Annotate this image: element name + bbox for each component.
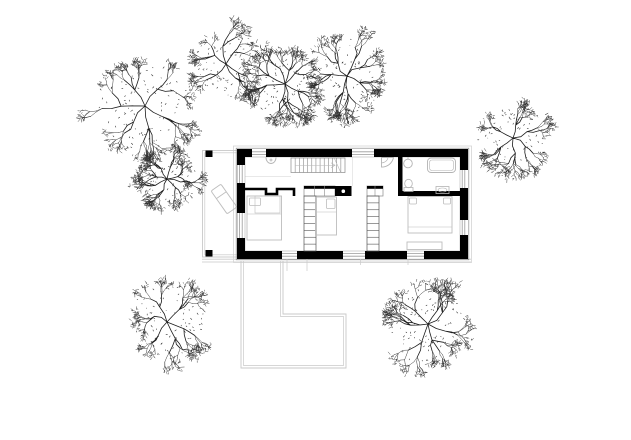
- tree: [128, 141, 208, 214]
- wall-segment: [460, 149, 468, 170]
- site-plan: [0, 0, 631, 440]
- tree: [129, 275, 211, 374]
- toilet: [404, 188, 413, 192]
- site-plan-canvas: [0, 0, 631, 440]
- staircase: [291, 158, 345, 174]
- lounge-chair: [211, 184, 237, 214]
- furniture: [247, 196, 452, 250]
- tree: [477, 97, 559, 183]
- patio-path: [241, 261, 346, 368]
- terrace-post: [206, 151, 213, 158]
- bench: [407, 242, 442, 250]
- wall-segment: [374, 149, 468, 157]
- tree: [382, 278, 477, 378]
- wall-segment: [237, 183, 245, 213]
- closet-wall: [245, 189, 294, 196]
- terrace-post: [206, 250, 213, 257]
- bed-right: [408, 197, 452, 234]
- bed-middle: [316, 197, 337, 235]
- terrace: [203, 151, 238, 258]
- trees: [76, 15, 558, 377]
- wall-segment: [424, 251, 468, 259]
- pillow: [444, 198, 451, 204]
- bathroom-sink: [404, 159, 413, 168]
- tree: [187, 15, 262, 101]
- pillow: [327, 199, 336, 209]
- kitchen-wall-units: [304, 186, 383, 196]
- wall-segment: [297, 251, 343, 259]
- wall-segment: [237, 251, 282, 259]
- wall-segment: [460, 188, 468, 220]
- washbasin: [266, 158, 276, 164]
- pillow: [410, 198, 417, 204]
- bed-left: [247, 196, 282, 240]
- tree: [76, 57, 201, 166]
- wall-segment: [365, 251, 407, 259]
- wall-segment: [398, 157, 403, 196]
- wall-segment: [237, 149, 245, 165]
- wall-segment: [266, 149, 352, 157]
